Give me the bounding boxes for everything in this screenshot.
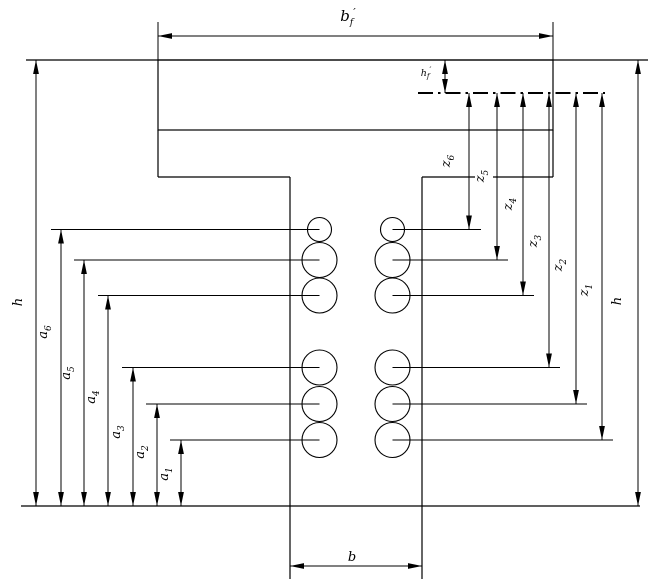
label-z2-sub: 2 <box>559 258 569 265</box>
label-z6-sub: 6 <box>447 154 457 160</box>
label-h-right-base: h <box>610 297 625 305</box>
label-a3-sub: 3 <box>117 425 127 431</box>
label-a6: a6 <box>36 325 54 339</box>
label-z3-sub: 3 <box>534 234 544 240</box>
label-a5: a5 <box>59 366 77 380</box>
label-bf: bf′ <box>340 6 356 28</box>
label-a4-base: a <box>84 396 99 404</box>
label-z4-sub: 4 <box>509 197 519 204</box>
tbeam-svg: bf′ hf′ b h a6 a5 a4 a3 a2 a1 z6 z5 z4 z… <box>0 0 651 579</box>
label-bf-sub: f <box>349 18 355 28</box>
rebar-circles <box>302 218 410 458</box>
label-a1-base: a <box>157 473 172 481</box>
label-a1-sub: 1 <box>165 467 175 473</box>
label-a2-base: a <box>133 451 148 459</box>
label-z2: z2 <box>551 258 569 272</box>
tbeam-diagram: bf′ hf′ b h a6 a5 a4 a3 a2 a1 z6 z5 z4 z… <box>0 0 651 579</box>
label-z6-base: z <box>439 160 454 168</box>
label-z6: z6 <box>439 154 457 168</box>
label-a2: a2 <box>133 445 151 459</box>
label-b-base: b <box>348 550 356 565</box>
label-z3-base: z <box>526 240 541 248</box>
label-a4-sub: 4 <box>92 390 102 397</box>
label-bf-base: b <box>340 7 350 25</box>
label-bf-prime: ′ <box>353 6 356 19</box>
label-a6-base: a <box>36 331 51 339</box>
label-h-right: h <box>610 297 625 305</box>
label-z1-sub: 1 <box>585 284 595 290</box>
label-z1: z1 <box>577 284 595 298</box>
label-a4: a4 <box>84 390 102 404</box>
label-b: b <box>348 550 356 565</box>
label-a5-base: a <box>59 372 74 380</box>
label-a2-sub: 2 <box>141 445 151 452</box>
label-h-left: h <box>11 298 26 306</box>
label-z1-base: z <box>577 289 592 297</box>
label-a3-base: a <box>109 431 124 439</box>
label-a3: a3 <box>109 425 127 439</box>
label-h-left-base: h <box>11 298 26 306</box>
label-z2-base: z <box>551 264 566 272</box>
label-a5-sub: 5 <box>67 366 77 372</box>
label-a1: a1 <box>157 467 175 481</box>
label-z5-base: z <box>473 175 488 183</box>
label-a6-sub: 6 <box>44 325 54 331</box>
label-hf-prime: ′ <box>429 66 431 75</box>
label-z5-sub: 5 <box>481 169 491 175</box>
label-z4: z4 <box>501 197 519 211</box>
flange-hatched-area <box>158 60 553 130</box>
label-z3: z3 <box>526 234 544 248</box>
label-z4-base: z <box>501 203 516 211</box>
section-outline <box>21 60 648 579</box>
